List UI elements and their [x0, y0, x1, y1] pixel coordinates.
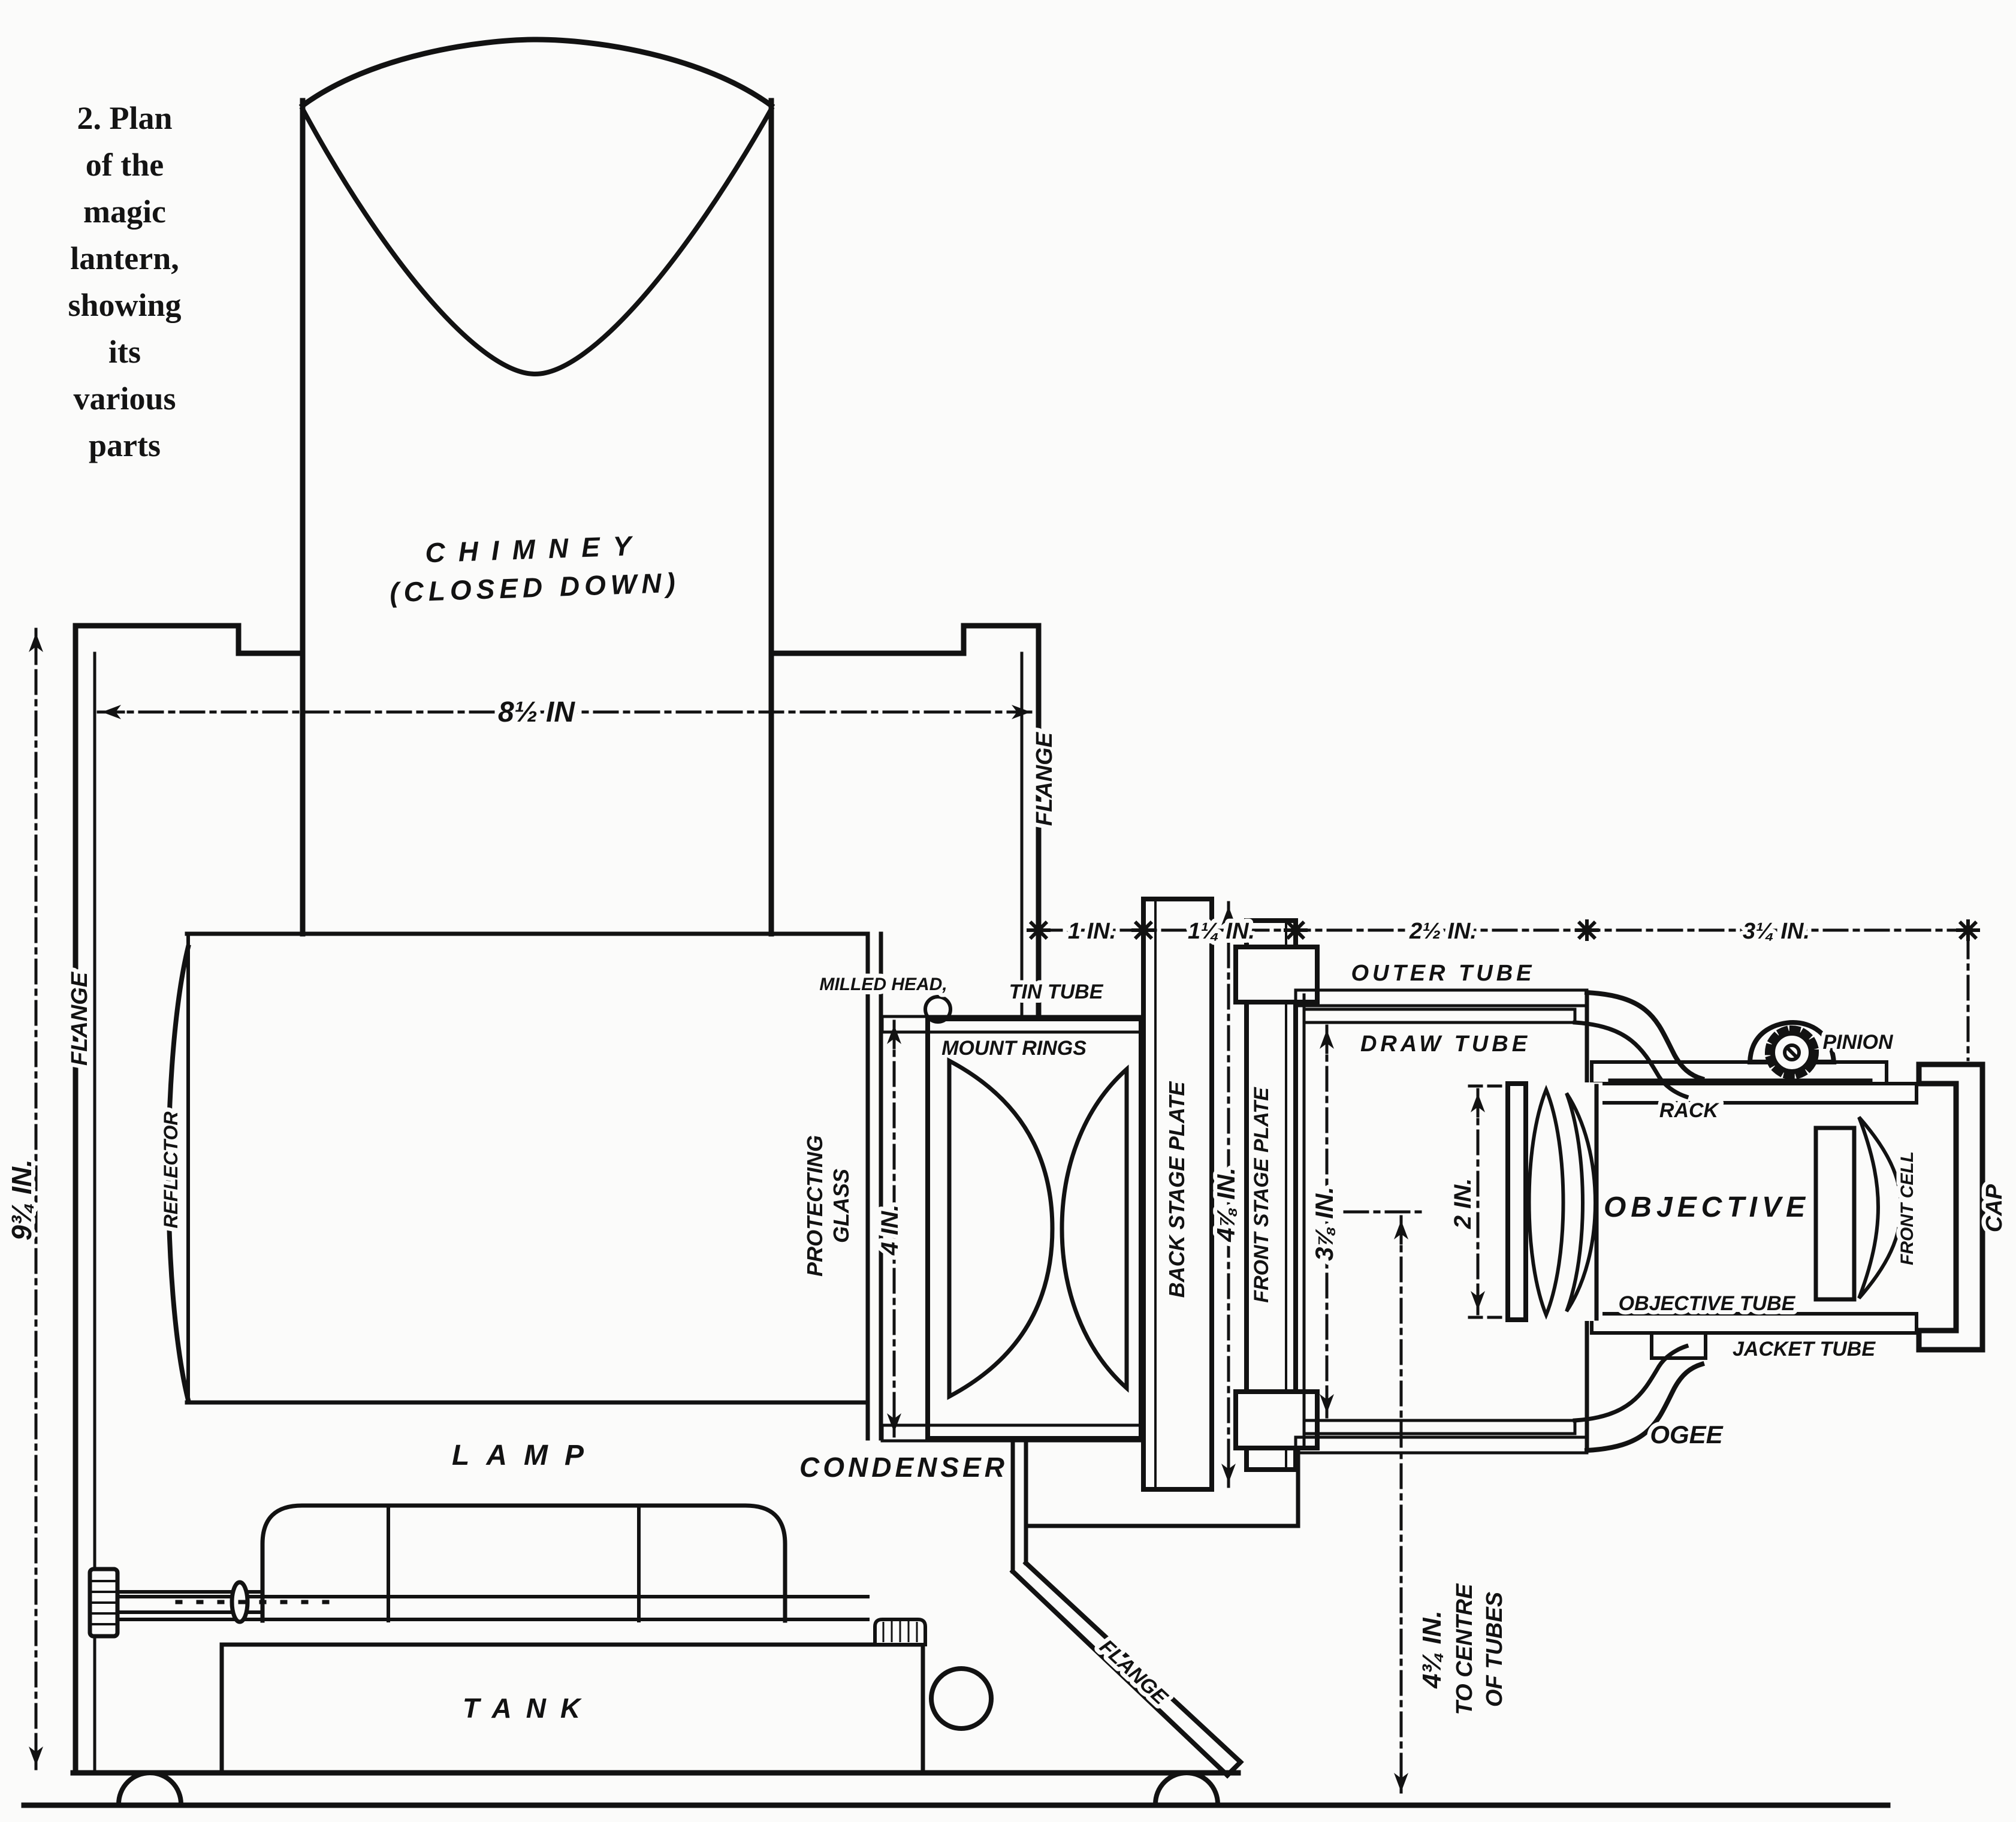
- dim-condenser-diameter: 4 IN.: [877, 1205, 903, 1256]
- label-chimney: CHIMNEY: [425, 530, 645, 569]
- caption-line: 2. Plan: [77, 100, 172, 136]
- outer-tube-wall-top: [1296, 990, 1587, 1006]
- dim-centre-height-caption: TO CENTRE: [1452, 1583, 1477, 1715]
- caption-line: parts: [89, 427, 161, 463]
- centre-height-dimension: 4¾ IN. TO CENTRE OF TUBES: [1401, 1217, 1507, 1796]
- body-top-right-edge: [771, 626, 1039, 653]
- dim-objective-diameter: 2 IN.: [1450, 1178, 1476, 1229]
- label-rack: RACK: [1659, 1099, 1720, 1122]
- draw-tube-wall-bottom: [1304, 1420, 1575, 1434]
- label-cap: CAP: [1982, 1184, 2007, 1232]
- condenser-mount-box: [928, 1019, 1141, 1438]
- label-condenser: CONDENSER: [799, 1452, 1008, 1483]
- dim-flange-to-back-plate: 1 IN.: [1068, 919, 1116, 944]
- lens-cap: [1919, 1064, 1982, 1350]
- outer-tube-wall-bottom: [1296, 1437, 1587, 1453]
- chimney-top-rim: [303, 40, 771, 105]
- label-jacket-tube: JACKET TUBE: [1733, 1338, 1876, 1361]
- objective-tube-wall-top: [1592, 1084, 1917, 1103]
- label-objective: OBJECTIVE: [1604, 1191, 1810, 1223]
- rear-cell-plate: [1508, 1084, 1526, 1320]
- dim-outer-tube-length: 2½ IN.: [1409, 919, 1477, 944]
- label-front-cell: FRONT CELL: [1897, 1151, 1917, 1265]
- magic-lantern-plan-diagram: 2. Plan of the magic lantern, showing it…: [0, 0, 2016, 1822]
- chimney-inner-rim: [303, 109, 771, 374]
- label-reflector: REFLECTOR: [160, 1112, 182, 1229]
- dim-body-height: 9¾ IN.: [6, 1159, 37, 1241]
- label-protecting-glass: GLASS: [829, 1169, 853, 1243]
- label-chimney-closed-down: (CLOSED DOWN): [389, 567, 680, 608]
- dim-draw-tube-diameter: 3⅞ IN.: [1310, 1187, 1338, 1261]
- label-ogee: OGEE: [1650, 1420, 1724, 1449]
- burner-outline: [262, 1506, 785, 1621]
- caption-line: magic: [83, 194, 166, 230]
- label-flange-left: FLANGE: [67, 971, 92, 1066]
- ogee-top-outer: [1587, 993, 1702, 1079]
- caption-line: showing: [68, 287, 181, 323]
- label-tank: TANK: [463, 1693, 594, 1724]
- dim-objective-length: 3¼ IN.: [1743, 919, 1810, 944]
- chimney: CHIMNEY (CLOSED DOWN): [303, 40, 771, 934]
- pinion-gear: [1768, 1028, 1816, 1076]
- objective-tube-wall-bottom: [1592, 1314, 1917, 1333]
- label-outer-tube: OUTER TUBE: [1351, 961, 1535, 986]
- label-flange-right: FLANGE: [1032, 731, 1057, 826]
- draw-tube-wall-top: [1304, 1009, 1575, 1022]
- label-tin-tube: TIN TUBE: [1009, 981, 1104, 1003]
- caption-line: of the: [86, 147, 164, 183]
- objective-assembly: PINION RACK 2 IN. OBJECTIVE OBJECTIVE TU…: [1450, 935, 2007, 1361]
- dim-centre-height: 4¾ IN.: [1417, 1610, 1447, 1689]
- front-cell-plate: [1816, 1128, 1854, 1299]
- dim-centre-height-caption: OF TUBES: [1482, 1592, 1507, 1707]
- label-protecting-glass: PROTECTING: [802, 1135, 827, 1277]
- figure-caption: 2. Plan of the magic lantern, showing it…: [68, 100, 181, 463]
- label-front-stage-plate: FRONT STAGE PLATE: [1250, 1087, 1273, 1303]
- body-top-left-edge: [76, 626, 303, 653]
- dim-stage-plates-width: 1¼ IN.: [1188, 919, 1255, 944]
- diagram-canvas: 2. Plan of the magic lantern, showing it…: [0, 0, 2016, 1822]
- foot-left: [119, 1773, 181, 1804]
- front-cell-lens: [1859, 1117, 1901, 1298]
- caption-line: its: [108, 334, 141, 370]
- flange-hole: [931, 1669, 991, 1729]
- foot-right: [1155, 1773, 1218, 1804]
- dim-back-plate-height: 4⅞ IN.: [1212, 1168, 1240, 1242]
- label-mount-rings: MOUNT RINGS: [941, 1037, 1087, 1060]
- caption-line: lantern,: [70, 240, 179, 276]
- caption-line: various: [73, 381, 176, 417]
- label-flange-foot: FLANGE: [1095, 1635, 1172, 1709]
- dim-body-width: 8½ IN: [498, 696, 575, 728]
- label-draw-tube: DRAW TUBE: [1360, 1031, 1531, 1057]
- label-back-stage-plate: BACK STAGE PLATE: [1164, 1081, 1189, 1298]
- label-objective-tube: OBJECTIVE TUBE: [1619, 1292, 1796, 1315]
- label-pinion: PINION: [1822, 1031, 1894, 1054]
- label-lamp: LAMP: [452, 1440, 600, 1471]
- label-milled-head: MILLED HEAD,: [819, 975, 947, 994]
- jacket-tube-bracket: [1652, 1333, 1706, 1358]
